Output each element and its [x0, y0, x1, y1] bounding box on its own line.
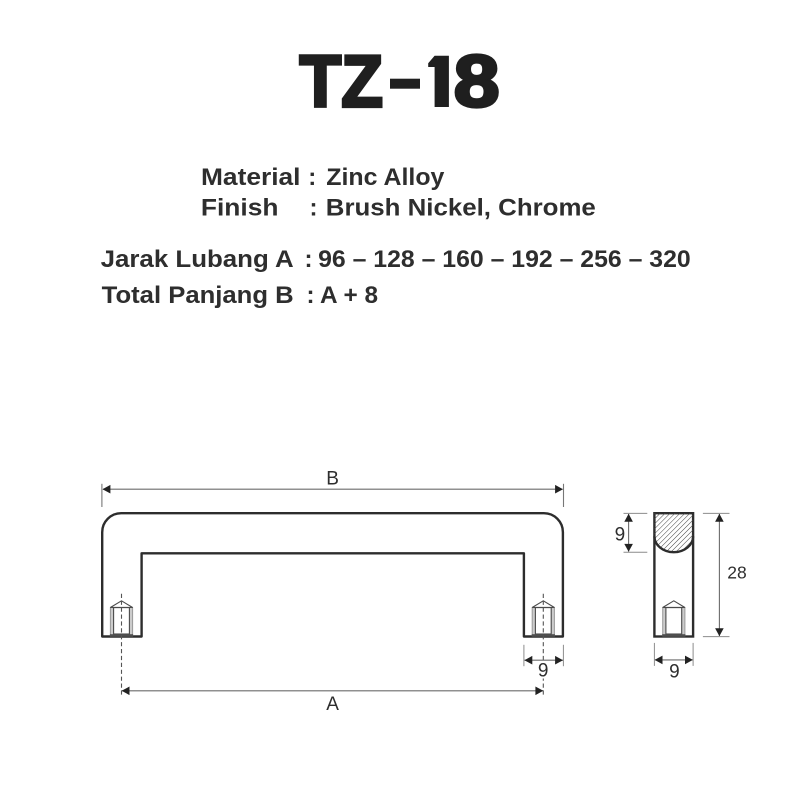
svg-text:8: 8: [454, 41, 500, 122]
svg-text:9: 9: [538, 661, 549, 682]
svg-text:Zinc Alloy: Zinc Alloy: [326, 164, 445, 191]
svg-text:Finish: Finish: [201, 195, 279, 222]
svg-text:28: 28: [727, 563, 746, 583]
svg-text:Material: Material: [201, 164, 301, 191]
svg-text:A: A: [326, 694, 339, 715]
svg-text:B: B: [326, 468, 339, 489]
svg-text::: :: [307, 282, 315, 309]
svg-text:Total Panjang B: Total Panjang B: [102, 282, 294, 309]
svg-text:96 – 128 – 160 – 192 – 256 – 3: 96 – 128 – 160 – 192 – 256 – 320: [318, 246, 691, 273]
svg-text::: :: [308, 164, 316, 191]
svg-text:9: 9: [669, 662, 680, 683]
svg-text::: :: [310, 195, 318, 222]
svg-text:9: 9: [615, 524, 626, 545]
svg-text:TZ: TZ: [300, 41, 384, 122]
svg-text:A + 8: A + 8: [320, 282, 378, 309]
svg-text:Jarak Lubang A: Jarak Lubang A: [101, 246, 294, 273]
svg-text::: :: [305, 246, 313, 273]
svg-text:Brush Nickel, Chrome: Brush Nickel, Chrome: [326, 195, 596, 222]
